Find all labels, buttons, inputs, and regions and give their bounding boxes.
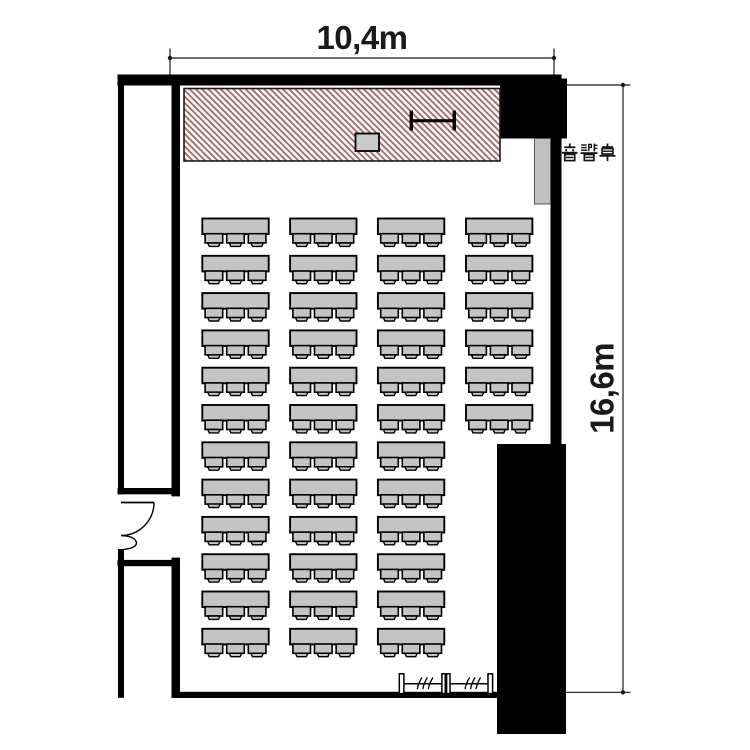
svg-text:16,6m: 16,6m xyxy=(584,343,621,434)
svg-text:10,4m: 10,4m xyxy=(316,19,407,56)
